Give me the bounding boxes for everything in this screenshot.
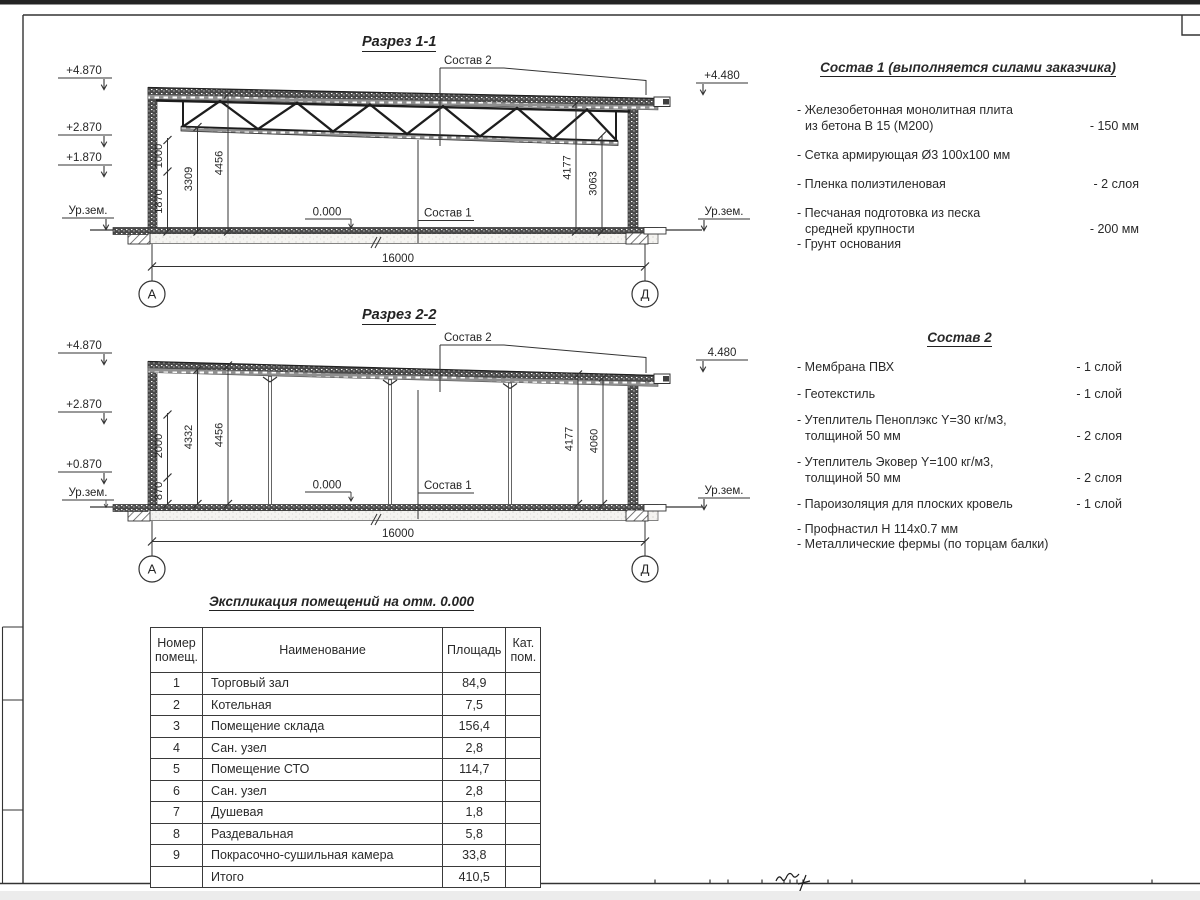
floor-slab	[148, 228, 658, 234]
room-category	[506, 866, 541, 888]
header-room-area: Площадь	[443, 628, 506, 673]
table-header-row: Номерпомещ. Наименование Площадь Кат.пом…	[151, 628, 541, 673]
composition-2-item: - Геотекстиль - 1 слой	[797, 387, 1122, 403]
item-value: - 1 слой	[1066, 387, 1122, 403]
composition-2-item: - Мембрана ПВХ - 1 слой	[797, 360, 1122, 376]
table-row: 5Помещение СТО114,7	[151, 759, 541, 781]
item-text: - Железобетонная монолитная плита	[797, 103, 1013, 119]
room-category	[506, 759, 541, 781]
item-text: - Геотекстиль	[797, 387, 875, 403]
svg-text:4.480: 4.480	[708, 347, 737, 359]
room-number: 3	[151, 716, 203, 738]
composition-2-title: Состав 2	[797, 330, 1122, 345]
dim-1870: 1870	[153, 189, 165, 213]
svg-text:+2.870: +2.870	[66, 399, 102, 411]
elevation-marks-left: +4.870 +2.870 +0.870 Ур.зем.	[58, 340, 114, 507]
svg-text:+1.870: +1.870	[66, 152, 102, 164]
header-room-name: Наименование	[203, 628, 443, 673]
composition-1-item: - Пленка полиэтиленовая - 2 слоя	[797, 177, 1139, 193]
left-margin-boxes	[3, 627, 24, 884]
room-name: Помещение СТО	[203, 759, 443, 781]
room-number: 8	[151, 823, 203, 845]
svg-text:Ур.зем.: Ур.зем.	[68, 487, 107, 499]
room-name: Торговый зал	[203, 673, 443, 695]
room-number: 5	[151, 759, 203, 781]
dim-4060: 4060	[589, 429, 601, 453]
callout-sostav1-label: Состав 1	[424, 208, 472, 220]
room-area: 7,5	[443, 694, 506, 716]
dim-4177: 4177	[562, 155, 574, 179]
room-number: 1	[151, 673, 203, 695]
ledge-right	[644, 228, 666, 235]
item-value: - 150 мм	[1080, 119, 1139, 135]
room-schedule-title: Экспликация помещений на отм. 0.000	[150, 594, 533, 609]
dim-2000: 2000	[153, 434, 165, 458]
callout-sostav2-label: Состав 2	[444, 332, 492, 344]
scan-top-bar	[0, 0, 1200, 5]
item-value: - 1 слой	[1066, 497, 1122, 513]
room-area: 410,5	[443, 866, 506, 888]
composition-2-block: Состав 2 - Мембрана ПВХ - 1 слой - Геоте…	[797, 318, 1122, 553]
item-text: - Утеплитель Эковер Y=100 кг/м3,	[797, 455, 993, 471]
room-name: Раздевальная	[203, 823, 443, 845]
foundation-right	[626, 233, 648, 244]
room-area: 1,8	[443, 802, 506, 824]
item-text: - Пароизоляция для плоских кровель	[797, 497, 1013, 513]
table-row: 7Душевая1,8	[151, 802, 541, 824]
item-text: - Сетка армирующая Ø3 100х100 мм	[797, 148, 1010, 164]
room-name: Душевая	[203, 802, 443, 824]
section-1-1-drawing: 1870 1000 3309 4456 4177 3063 0.000 Сост…	[58, 55, 750, 307]
table-row: 2Котельная7,5	[151, 694, 541, 716]
dim-4332: 4332	[183, 425, 195, 449]
table-row: 1Торговый зал84,9	[151, 673, 541, 695]
item-text: - Пленка полиэтиленовая	[797, 177, 946, 193]
floor-sand-layer	[148, 511, 658, 521]
foundation-right	[626, 510, 648, 521]
item-text-2: толщиной 50 мм	[797, 471, 993, 487]
item-value: - 2 слоя	[1084, 177, 1139, 193]
composition-2-item: - Металлические фермы (по торцам балки)	[797, 537, 1122, 553]
table-row: 6Сан. узел2,8	[151, 780, 541, 802]
room-category	[506, 673, 541, 695]
axis-bubble-a: А	[148, 287, 157, 302]
drawing-sheet: 1870 1000 3309 4456 4177 3063 0.000 Сост…	[0, 0, 1200, 900]
svg-text:Ур.зем.: Ур.зем.	[704, 206, 743, 218]
room-category	[506, 780, 541, 802]
item-text: - Грунт основания	[797, 237, 901, 253]
composition-2-item: - Утеплитель Эковер Y=100 кг/м3,толщиной…	[797, 455, 1122, 486]
callout-sostav1-label: Состав 1	[424, 480, 472, 492]
table-row: 4Сан. узел2,8	[151, 737, 541, 759]
axis-bubble-d: Д	[641, 287, 650, 302]
item-value: - 2 слоя	[1067, 429, 1122, 445]
room-category	[506, 823, 541, 845]
dim-4456: 4456	[214, 151, 226, 175]
composition-1-item: - Грунт основания	[797, 237, 1139, 253]
room-number: 6	[151, 780, 203, 802]
ledge-right	[644, 505, 666, 512]
item-text: - Утеплитель Пеноплэкс Y=30 кг/м3,	[797, 413, 1007, 429]
svg-text:+4.870: +4.870	[66, 340, 102, 352]
item-text: - Песчаная подготовка из песка	[797, 206, 980, 222]
elevation-marks-right: +4.480 Ур.зем.	[696, 70, 750, 231]
room-category	[506, 845, 541, 867]
svg-text:Ур.зем.: Ур.зем.	[704, 485, 743, 497]
room-category	[506, 716, 541, 738]
room-number: 2	[151, 694, 203, 716]
room-number: 9	[151, 845, 203, 867]
dim-870: 870	[153, 482, 165, 500]
interior-columns	[263, 376, 517, 504]
room-area: 2,8	[443, 780, 506, 802]
svg-text:+2.870: +2.870	[66, 122, 102, 134]
item-text-2: толщиной 50 мм	[797, 429, 1007, 445]
table-row: 9Покрасочно-сушильная камера33,8	[151, 845, 541, 867]
room-area: 156,4	[443, 716, 506, 738]
item-value: - 2 слоя	[1067, 471, 1122, 487]
svg-text:Ур.зем.: Ур.зем.	[68, 205, 107, 217]
composition-1-item: - Песчаная подготовка из пескасредней кр…	[797, 206, 1139, 237]
section-2-2-drawing: 870 2000 4332 4456 4177 4060 0.000 Соста…	[58, 332, 750, 582]
room-area: 33,8	[443, 845, 506, 867]
item-text-2: из бетона В 15 (М200)	[797, 119, 1013, 135]
room-schedule-table: Номерпомещ. Наименование Площадь Кат.пом…	[150, 627, 541, 888]
zero-mark: 0.000	[313, 480, 342, 492]
dim-4177: 4177	[564, 427, 576, 451]
composition-1-item: - Сетка армирующая Ø3 100х100 мм	[797, 148, 1139, 164]
composition-1-block: Состав 1 (выполняется силами заказчика) …	[797, 60, 1139, 253]
room-area: 84,9	[443, 673, 506, 695]
dim-lines-right	[572, 100, 606, 236]
room-area: 114,7	[443, 759, 506, 781]
room-area: 2,8	[443, 737, 506, 759]
section-1-1-title: Разрез 1-1	[362, 34, 436, 50]
composition-1-title: Состав 1 (выполняется силами заказчика)	[797, 60, 1139, 75]
composition-2-item: - Пароизоляция для плоских кровель - 1 с…	[797, 497, 1122, 513]
item-text-2: средней крупности	[797, 222, 980, 238]
zero-mark: 0.000	[313, 207, 342, 219]
axis-bubble-d: Д	[641, 562, 650, 577]
section-2-2-title: Разрез 2-2	[362, 307, 436, 323]
dim-3063: 3063	[588, 171, 600, 195]
item-text: - Профнастил Н 114х0.7 мм	[797, 522, 958, 538]
ledge-left	[113, 228, 148, 235]
span-16000: 16000	[382, 253, 414, 265]
room-category	[506, 802, 541, 824]
svg-text:+0.870: +0.870	[66, 459, 102, 471]
room-category	[506, 694, 541, 716]
wall-right	[628, 382, 638, 505]
room-number: 4	[151, 737, 203, 759]
svg-text:+4.480: +4.480	[704, 70, 740, 82]
table-row-total: Итого410,5	[151, 866, 541, 888]
scan-bottom-strip	[0, 891, 1200, 900]
composition-1-item: - Железобетонная монолитная плитаиз бето…	[797, 103, 1139, 134]
callout-sostav2-label: Состав 2	[444, 55, 492, 67]
composition-2-item: - Утеплитель Пеноплэкс Y=30 кг/м3,толщин…	[797, 413, 1122, 444]
wall-right	[628, 105, 638, 228]
room-name: Сан. узел	[203, 737, 443, 759]
span-16000: 16000	[382, 528, 414, 540]
room-number: 7	[151, 802, 203, 824]
elevation-marks-left: +4.870 +2.870 +1.870 Ур.зем.	[58, 65, 114, 230]
room-name: Итого	[203, 866, 443, 888]
table-row: 8Раздевальная5,8	[151, 823, 541, 845]
axis-bubble-a: А	[148, 562, 157, 577]
table-row: 3Помещение склада156,4	[151, 716, 541, 738]
dim-3309: 3309	[183, 167, 195, 191]
header-room-category: Кат.пом.	[506, 628, 541, 673]
room-name: Покрасочно-сушильная камера	[203, 845, 443, 867]
elevation-marks-right: 4.480 Ур.зем.	[696, 347, 750, 510]
composition-2-item: - Профнастил Н 114х0.7 мм	[797, 522, 1122, 538]
room-category	[506, 737, 541, 759]
item-value: - 1 слой	[1066, 360, 1122, 376]
corner-box	[1182, 15, 1200, 35]
item-text: - Металлические фермы (по торцам балки)	[797, 537, 1048, 553]
item-text: - Мембрана ПВХ	[797, 360, 894, 376]
room-number	[151, 866, 203, 888]
room-name: Котельная	[203, 694, 443, 716]
room-area: 5,8	[443, 823, 506, 845]
item-value: - 200 мм	[1080, 222, 1139, 238]
dim-4456: 4456	[214, 423, 226, 447]
room-name: Сан. узел	[203, 780, 443, 802]
ledge-left	[113, 505, 148, 512]
room-name: Помещение склада	[203, 716, 443, 738]
header-room-number: Номерпомещ.	[151, 628, 203, 673]
dim-1000: 1000	[153, 144, 165, 168]
svg-text:+4.870: +4.870	[66, 65, 102, 77]
